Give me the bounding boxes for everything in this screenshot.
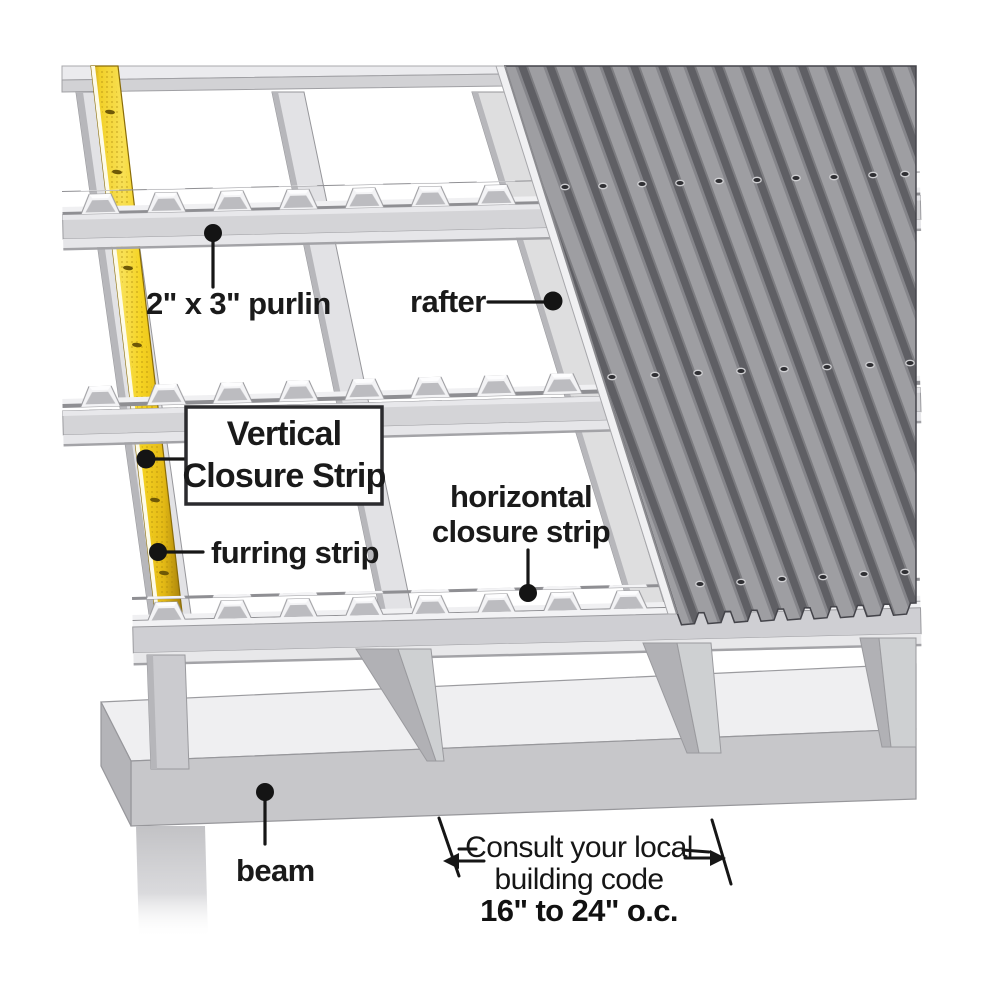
dimension-tick-right xyxy=(712,820,731,884)
top-cropped-purlin xyxy=(62,66,505,92)
dimension-note-line1: Consult your local xyxy=(465,831,693,864)
beam xyxy=(101,664,916,826)
furring-strip-yellow xyxy=(91,66,182,612)
callout-dot-vertical-closure xyxy=(137,450,156,469)
diagram-canvas: 2" x 3" purlin rafter Vertical Closure S… xyxy=(0,0,1000,1000)
rafter-tail-1 xyxy=(147,655,189,769)
callout-dot-purlin xyxy=(204,224,222,242)
vertical-closure-label-line1: Vertical xyxy=(227,415,342,453)
horizontal-closure-label-line2: closure strip xyxy=(432,514,610,549)
purlin-label: 2" x 3" purlin xyxy=(146,286,331,321)
callout-dot-horizontal-closure xyxy=(519,584,537,602)
horizontal-closure-label-line1: horizontal xyxy=(450,479,592,514)
vertical-closure-label-line2: Closure Strip xyxy=(182,457,385,495)
callout-horizontal-closure-strip: horizontal closure strip xyxy=(432,479,610,602)
dimension-note-line2: building code xyxy=(494,863,663,896)
furring-strip-label: furring strip xyxy=(211,535,379,570)
callout-dot-beam xyxy=(256,783,274,801)
beam-label: beam xyxy=(236,853,315,888)
dimension-note: Consult your local building code 16" to … xyxy=(439,818,731,928)
callout-dot-furring xyxy=(149,543,167,561)
callout-dot-rafter xyxy=(544,292,563,311)
roofing-installation-diagram: 2" x 3" purlin rafter Vertical Closure S… xyxy=(0,0,1000,1000)
dimension-note-line3: 16" to 24" o.c. xyxy=(480,893,678,928)
rafter-label: rafter xyxy=(410,284,486,319)
support-post-below-beam xyxy=(136,826,208,938)
